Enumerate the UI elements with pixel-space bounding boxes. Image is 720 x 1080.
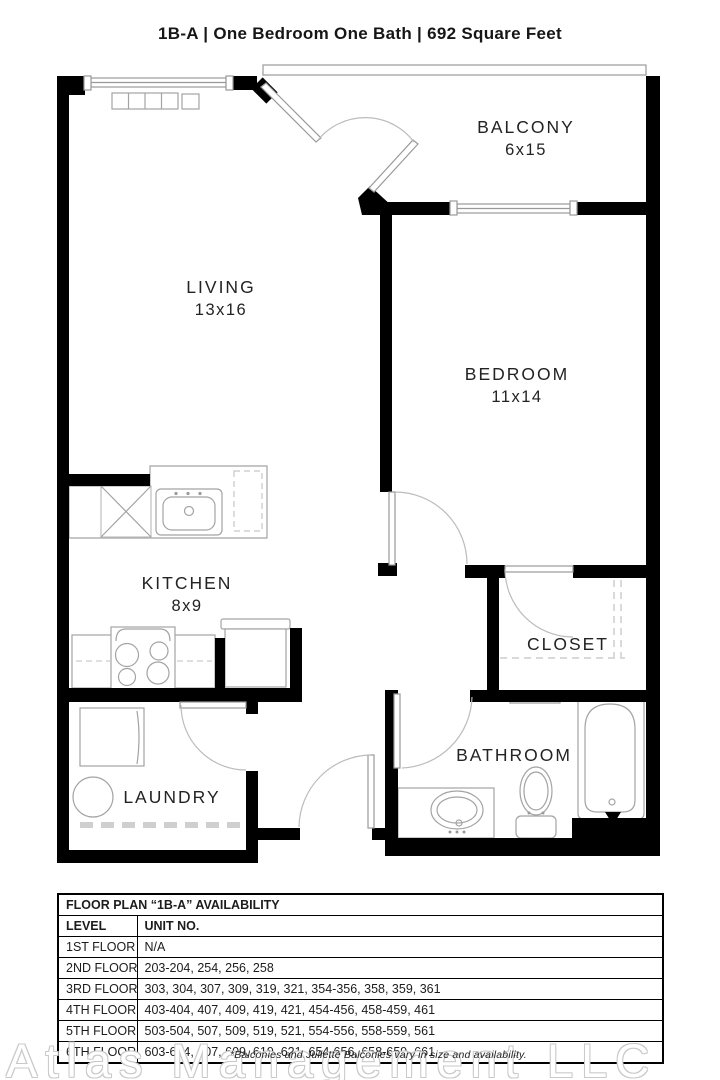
table-cell: 3RD FLOOR: [58, 979, 137, 1000]
balcony-glass-panel: [369, 140, 418, 192]
table-row: 3RD FLOOR 303, 304, 307, 309, 319, 321, …: [58, 979, 663, 1000]
refrigerator: [221, 619, 290, 687]
bedroom-door-arc: [395, 492, 467, 564]
room-dims: 8x9: [92, 595, 282, 618]
table-cell: 1ST FLOOR: [58, 937, 137, 958]
stove: [72, 627, 215, 689]
toilet: [516, 767, 556, 838]
room-name: KITCHEN: [92, 572, 282, 595]
footnote: *Balconies and Juliette Balconies vary i…: [230, 1049, 527, 1061]
table-cell: 2ND FLOOR: [58, 958, 137, 979]
table-cell: 403-404, 407, 409, 419, 421, 454-456, 45…: [137, 1000, 663, 1021]
balcony-railing: [263, 65, 646, 75]
room-label-living: LIVING 13x16: [126, 276, 316, 322]
bedroom-window: [450, 201, 577, 215]
balcony-door-arc: [318, 118, 414, 142]
table-header-level: LEVEL: [58, 916, 137, 937]
table-row: 4TH FLOOR 403-404, 407, 409, 419, 421, 4…: [58, 1000, 663, 1021]
entry-door-arc: [299, 755, 371, 827]
heater-unit: [112, 93, 199, 109]
table-title-cell: FLOOR PLAN “1B-A” AVAILABILITY: [58, 894, 663, 916]
laundry-door-arc: [181, 705, 246, 770]
table-row: FLOOR PLAN “1B-A” AVAILABILITY: [58, 894, 663, 916]
bathroom-sink: [398, 788, 494, 838]
laundry-door-leaf: [180, 702, 246, 708]
room-dims: 11x14: [422, 386, 612, 409]
room-label-balcony: BALCONY 6x15: [431, 116, 621, 162]
room-label-closet: CLOSET: [473, 633, 663, 656]
bathroom-door-leaf: [394, 694, 400, 768]
floor-plan-page: 1B-A | One Bedroom One Bath | 692 Square…: [0, 0, 720, 1080]
table-cell: 303, 304, 307, 309, 319, 321, 354-356, 3…: [137, 979, 663, 1000]
room-dims: 6x15: [431, 139, 621, 162]
room-name: BATHROOM: [419, 744, 609, 767]
table-row: 2ND FLOOR 203-204, 254, 256, 258: [58, 958, 663, 979]
room-name: LAUNDRY: [77, 786, 267, 809]
table-cell: 203-204, 254, 256, 258: [137, 958, 663, 979]
closet-door-arc: [505, 569, 573, 637]
room-label-kitchen: KITCHEN 8x9: [92, 572, 282, 618]
closet-door-leaf: [505, 566, 573, 572]
washer: [80, 708, 144, 766]
table-cell: N/A: [137, 937, 663, 958]
room-name: BEDROOM: [422, 363, 612, 386]
balcony-door-leaf: [261, 83, 321, 142]
entry-door-leaf: [368, 755, 374, 828]
room-name: CLOSET: [473, 633, 663, 656]
kitchen-sink: [156, 489, 222, 535]
living-window: [84, 76, 233, 90]
table-row: 1ST FLOOR N/A: [58, 937, 663, 958]
room-label-laundry: LAUNDRY: [77, 786, 267, 809]
room-dims: 13x16: [126, 299, 316, 322]
room-label-bathroom: BATHROOM: [419, 744, 609, 767]
bedroom-door-leaf: [389, 492, 395, 565]
table-row: LEVEL UNIT NO.: [58, 916, 663, 937]
table-header-units: UNIT NO.: [137, 916, 663, 937]
table-cell: 4TH FLOOR: [58, 1000, 137, 1021]
room-name: BALCONY: [431, 116, 621, 139]
room-name: LIVING: [126, 276, 316, 299]
room-label-bedroom: BEDROOM 11x14: [422, 363, 612, 409]
